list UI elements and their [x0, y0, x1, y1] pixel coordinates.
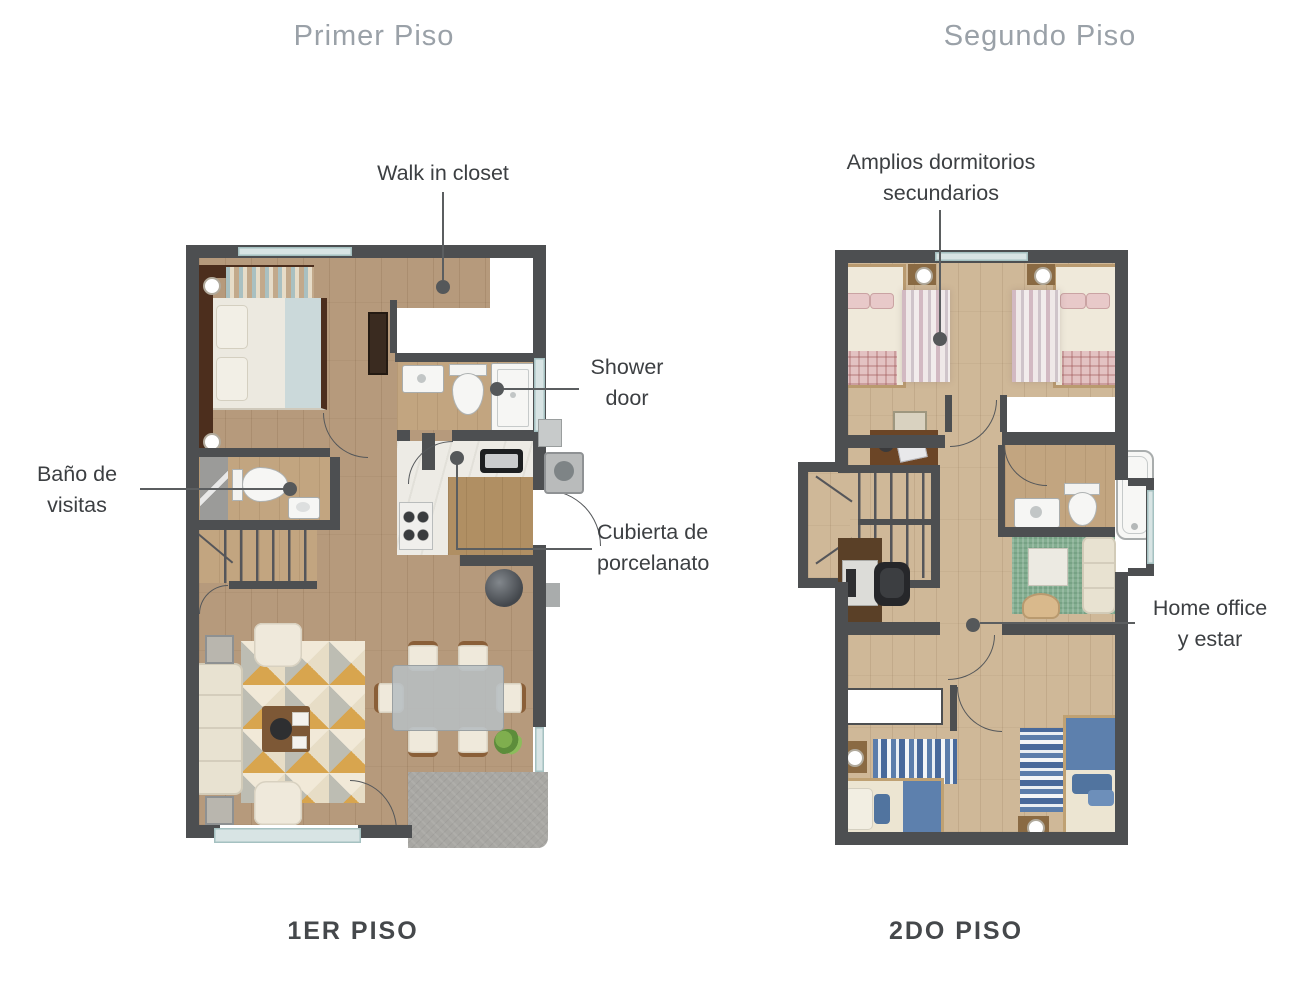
closet-bottom-left — [838, 688, 943, 725]
desk-mirror — [893, 411, 927, 432]
annotation-bano-visitas: Baño de visitas — [37, 459, 117, 521]
wall-right-2a — [1115, 250, 1128, 480]
stairwell-wall-top — [838, 465, 940, 473]
armchair — [254, 623, 302, 667]
wall-left-2a — [835, 250, 848, 465]
sofa — [193, 663, 243, 795]
caption-second-floor: 2DO PISO — [889, 917, 1023, 946]
annotation-text: Amplios dormitorios — [847, 147, 1036, 178]
floor-plan-sheet: Primer Piso Segundo Piso — [0, 0, 1308, 990]
wardrobe — [368, 312, 388, 375]
annotation-text: Home office — [1153, 593, 1267, 624]
annotation-text: Walk in closet — [377, 161, 509, 185]
leader-line-walk-in-closet — [442, 192, 444, 280]
leader-line-dormitorios — [939, 210, 941, 334]
window-top — [238, 247, 352, 256]
door-arc-entry — [546, 490, 601, 546]
wall-right-lower — [533, 545, 546, 727]
utility-panel — [538, 419, 562, 447]
washer-door — [554, 461, 574, 481]
caption-first-floor: 1ER PISO — [287, 917, 418, 946]
corridor-wall — [1000, 395, 1007, 432]
mid-wall-right — [1002, 432, 1115, 445]
leader-line-cubierta-h — [456, 548, 592, 550]
bathtub-drain — [1131, 523, 1138, 530]
office-chair — [874, 562, 910, 606]
annotation-text: Baño de — [37, 459, 117, 490]
annotation-text: visitas — [37, 490, 117, 521]
leader-line-shower-door — [503, 388, 579, 390]
book — [292, 712, 309, 726]
closet-niche — [1003, 397, 1115, 432]
blue-blanket — [903, 781, 941, 835]
stairwell-wall — [931, 465, 940, 588]
window-top-2 — [935, 252, 1028, 261]
guest-sink-basin — [296, 502, 310, 512]
dining-chair — [408, 727, 438, 757]
annotation-dormitorios: Amplios dormitorios secundarios — [847, 147, 1036, 209]
annotation-text: door — [591, 383, 664, 414]
window-dining — [535, 727, 544, 772]
bed-top-right — [1053, 264, 1122, 388]
stair-edge-wall — [229, 581, 317, 589]
estar-wall-left — [848, 622, 940, 635]
sink-drain — [417, 374, 426, 383]
pillow — [216, 305, 248, 349]
kitchen-counter — [448, 477, 533, 555]
wall-right-2b — [1115, 572, 1128, 832]
annotation-text: secundarios — [847, 178, 1036, 209]
bay-window — [214, 828, 361, 843]
kitchen-wall — [460, 555, 533, 566]
leader-dot-walk-in-closet — [436, 280, 450, 294]
leader-dot-shower-door — [490, 382, 504, 396]
side-table — [205, 796, 234, 825]
bedroom-bath-wall — [199, 448, 330, 457]
closet-wall — [390, 300, 397, 353]
stair-flight-upper — [858, 473, 931, 519]
kitchen-sink — [480, 449, 523, 473]
leader-line-bano — [140, 488, 286, 490]
wall-lamp — [203, 277, 221, 295]
dining-chair — [458, 727, 488, 757]
wall-bottom-2 — [835, 832, 1128, 845]
wall-bottom-mid — [358, 825, 412, 838]
side-table — [205, 635, 234, 664]
annotation-text: porcelanato — [597, 548, 709, 579]
pillow — [845, 788, 873, 830]
blue-cushion — [1088, 790, 1114, 806]
annotation-walk-in-closet: Walk in closet — [377, 158, 509, 189]
bed-blanket — [285, 298, 321, 408]
bathroom2-sink — [1014, 498, 1060, 528]
wall-left-2b — [835, 582, 848, 845]
bath2-wall-bottom — [998, 527, 1115, 537]
stove — [399, 502, 433, 550]
meter-box — [546, 583, 560, 607]
blue-blanket — [1066, 718, 1118, 770]
window-tub — [1147, 490, 1154, 564]
tub-bump-wall-bottom — [1128, 568, 1154, 576]
book — [292, 736, 307, 749]
coffee-table — [262, 706, 310, 752]
shower-inner — [497, 369, 529, 427]
tray — [270, 718, 292, 740]
closet-wall — [395, 353, 533, 362]
estar-table — [1028, 548, 1068, 586]
bathroom-sink — [402, 365, 444, 393]
shower-drain — [510, 392, 516, 398]
plant — [494, 729, 522, 755]
stair-treads — [224, 530, 317, 583]
wall-left — [186, 245, 199, 838]
leader-line-home-office — [980, 622, 1135, 624]
water-heater — [485, 569, 523, 607]
pillow — [1060, 293, 1086, 309]
title-second-floor: Segundo Piso — [944, 20, 1137, 53]
estar-sofa — [1082, 536, 1116, 614]
pillow — [870, 293, 894, 309]
master-bed — [213, 298, 327, 410]
armchair — [254, 781, 302, 825]
plan-first-floor — [186, 245, 606, 863]
rug-pink-right — [1012, 290, 1060, 382]
plaid-blanket — [1062, 351, 1119, 385]
leader-dot-cubierta — [450, 451, 464, 465]
table-lamp — [846, 749, 864, 767]
annotation-text: Shower — [591, 352, 664, 383]
bath-wall — [397, 430, 410, 441]
bath-wall — [452, 430, 533, 441]
kitchen-sink-basin — [485, 454, 518, 468]
leader-line-cubierta-v — [456, 463, 458, 549]
washer — [544, 452, 584, 494]
guest-sink — [288, 497, 320, 519]
bump-wall-left — [798, 462, 808, 588]
pillow — [1086, 293, 1110, 309]
leader-dot-home-office — [966, 618, 980, 632]
annotation-text: Cubierta de — [597, 517, 709, 548]
guest-bath-wall — [330, 457, 340, 520]
walk-in-closet-area — [490, 258, 533, 308]
mid-wall-left — [848, 435, 945, 448]
plaid-blanket — [840, 351, 897, 385]
pillow — [216, 357, 248, 401]
sink-drain — [1030, 506, 1042, 518]
bedroom-divider-stub — [950, 685, 957, 731]
leader-dot-bano — [283, 482, 297, 496]
table-lamp — [915, 267, 933, 285]
dining-table — [392, 665, 504, 731]
plan-second-floor — [798, 250, 1168, 858]
title-first-floor: Primer Piso — [294, 20, 455, 53]
annotation-shower-door: Shower door — [591, 352, 664, 414]
patio-stone — [408, 772, 548, 848]
blue-cushion — [874, 794, 890, 824]
leader-dot-dormitorios — [933, 332, 947, 346]
pouf — [1022, 593, 1060, 619]
office-chair-seat — [880, 568, 904, 598]
annotation-cubierta: Cubierta de porcelanato — [597, 517, 709, 579]
walk-in-closet-area-2 — [395, 308, 533, 353]
annotation-home-office: Home office y estar — [1153, 593, 1267, 655]
rug-blue-right — [1020, 728, 1064, 812]
bed-runner-rug — [226, 267, 314, 298]
table-lamp — [1034, 267, 1052, 285]
bath2-wall — [998, 445, 1005, 533]
bump-wall-bottom — [798, 578, 838, 588]
annotation-text: y estar — [1153, 624, 1267, 655]
guest-bath-wall — [199, 520, 340, 530]
shower-tray — [491, 363, 535, 433]
